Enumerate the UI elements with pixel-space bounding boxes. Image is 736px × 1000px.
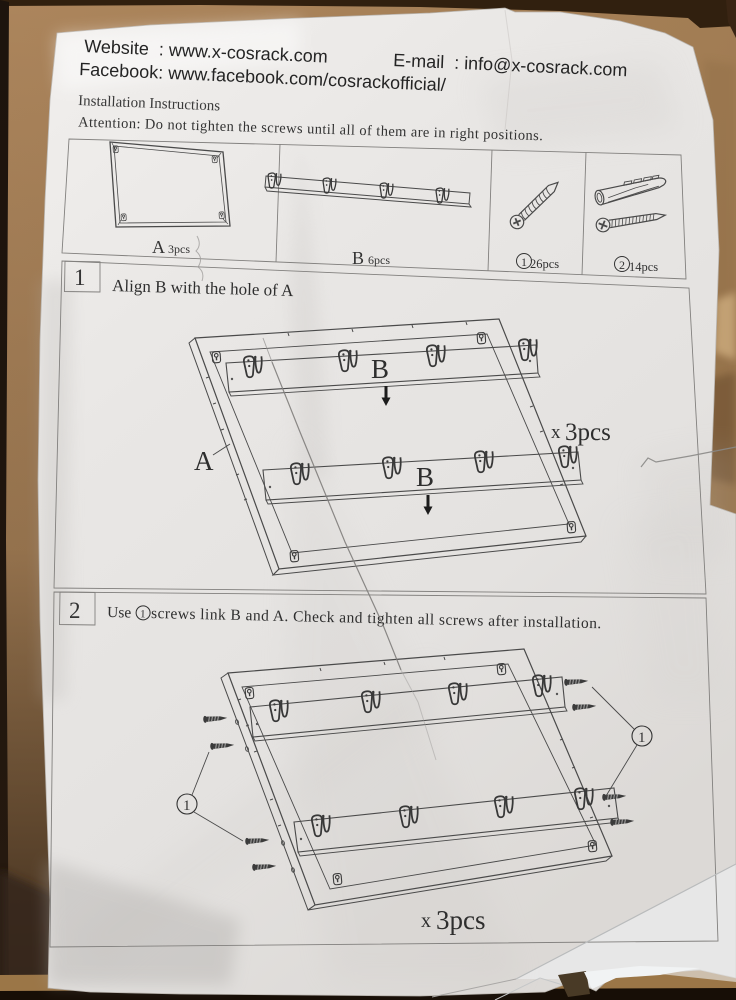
- svg-text:1: 1: [74, 265, 86, 290]
- svg-text:A: A: [152, 237, 165, 257]
- svg-text:6pcs: 6pcs: [368, 253, 390, 267]
- svg-text:B: B: [352, 248, 364, 268]
- svg-text:3pcs: 3pcs: [168, 242, 190, 256]
- svg-text:x: x: [551, 422, 561, 443]
- svg-text:1: 1: [183, 798, 191, 814]
- svg-text:A: A: [194, 446, 214, 476]
- svg-text:B: B: [371, 354, 389, 384]
- svg-text:14pcs: 14pcs: [629, 260, 658, 274]
- svg-text:1: 1: [638, 730, 646, 746]
- svg-text:B: B: [416, 462, 434, 492]
- svg-text:3pcs: 3pcs: [436, 905, 486, 935]
- svg-text:3pcs: 3pcs: [565, 419, 611, 446]
- svg-text:1: 1: [521, 255, 527, 269]
- svg-text:x: x: [421, 910, 431, 932]
- svg-text:26pcs: 26pcs: [530, 257, 559, 271]
- svg-text:2: 2: [619, 258, 625, 272]
- svg-text:1: 1: [140, 608, 146, 620]
- svg-text:2: 2: [69, 598, 81, 623]
- svg-text:Use: Use: [107, 604, 132, 622]
